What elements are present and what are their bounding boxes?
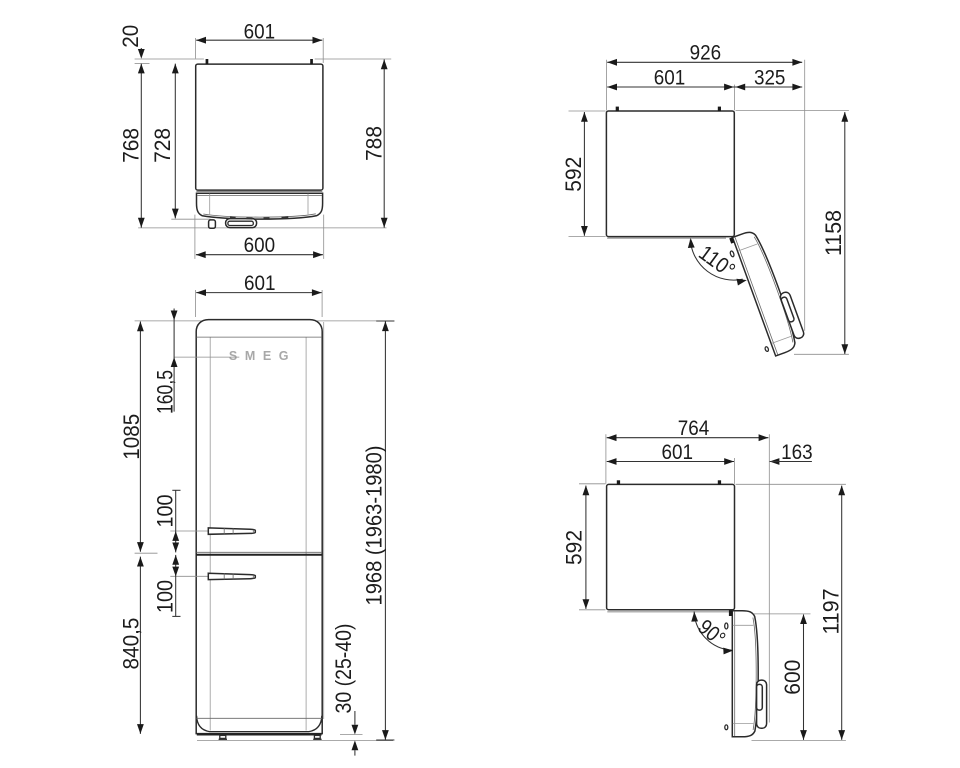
svg-text:100: 100	[153, 495, 178, 528]
svg-text:1197: 1197	[819, 589, 844, 635]
svg-text:600: 600	[244, 233, 276, 257]
svg-text:325: 325	[754, 65, 786, 89]
svg-text:SMEG: SMEG	[229, 349, 296, 363]
svg-text:601: 601	[244, 271, 276, 295]
svg-text:20: 20	[118, 25, 143, 48]
svg-text:1158: 1158	[821, 210, 846, 256]
svg-text:592: 592	[561, 157, 586, 192]
svg-text:601: 601	[662, 440, 694, 464]
svg-text:160,5: 160,5	[152, 370, 177, 414]
svg-text:163: 163	[781, 440, 813, 464]
svg-text:592: 592	[562, 530, 587, 565]
svg-text:840,5: 840,5	[118, 618, 143, 670]
svg-text:601: 601	[244, 19, 276, 43]
svg-text:600: 600	[780, 660, 805, 695]
svg-text:100: 100	[153, 580, 178, 613]
svg-text:926: 926	[690, 41, 722, 65]
svg-text:30 (25-40): 30 (25-40)	[331, 624, 356, 714]
svg-text:1968 (1963-1980): 1968 (1963-1980)	[362, 446, 387, 606]
svg-text:601: 601	[654, 65, 686, 89]
svg-text:1085: 1085	[119, 414, 144, 460]
svg-text:768: 768	[118, 128, 143, 163]
svg-text:764: 764	[678, 416, 710, 440]
svg-text:728: 728	[150, 128, 175, 163]
svg-text:788: 788	[361, 126, 386, 161]
